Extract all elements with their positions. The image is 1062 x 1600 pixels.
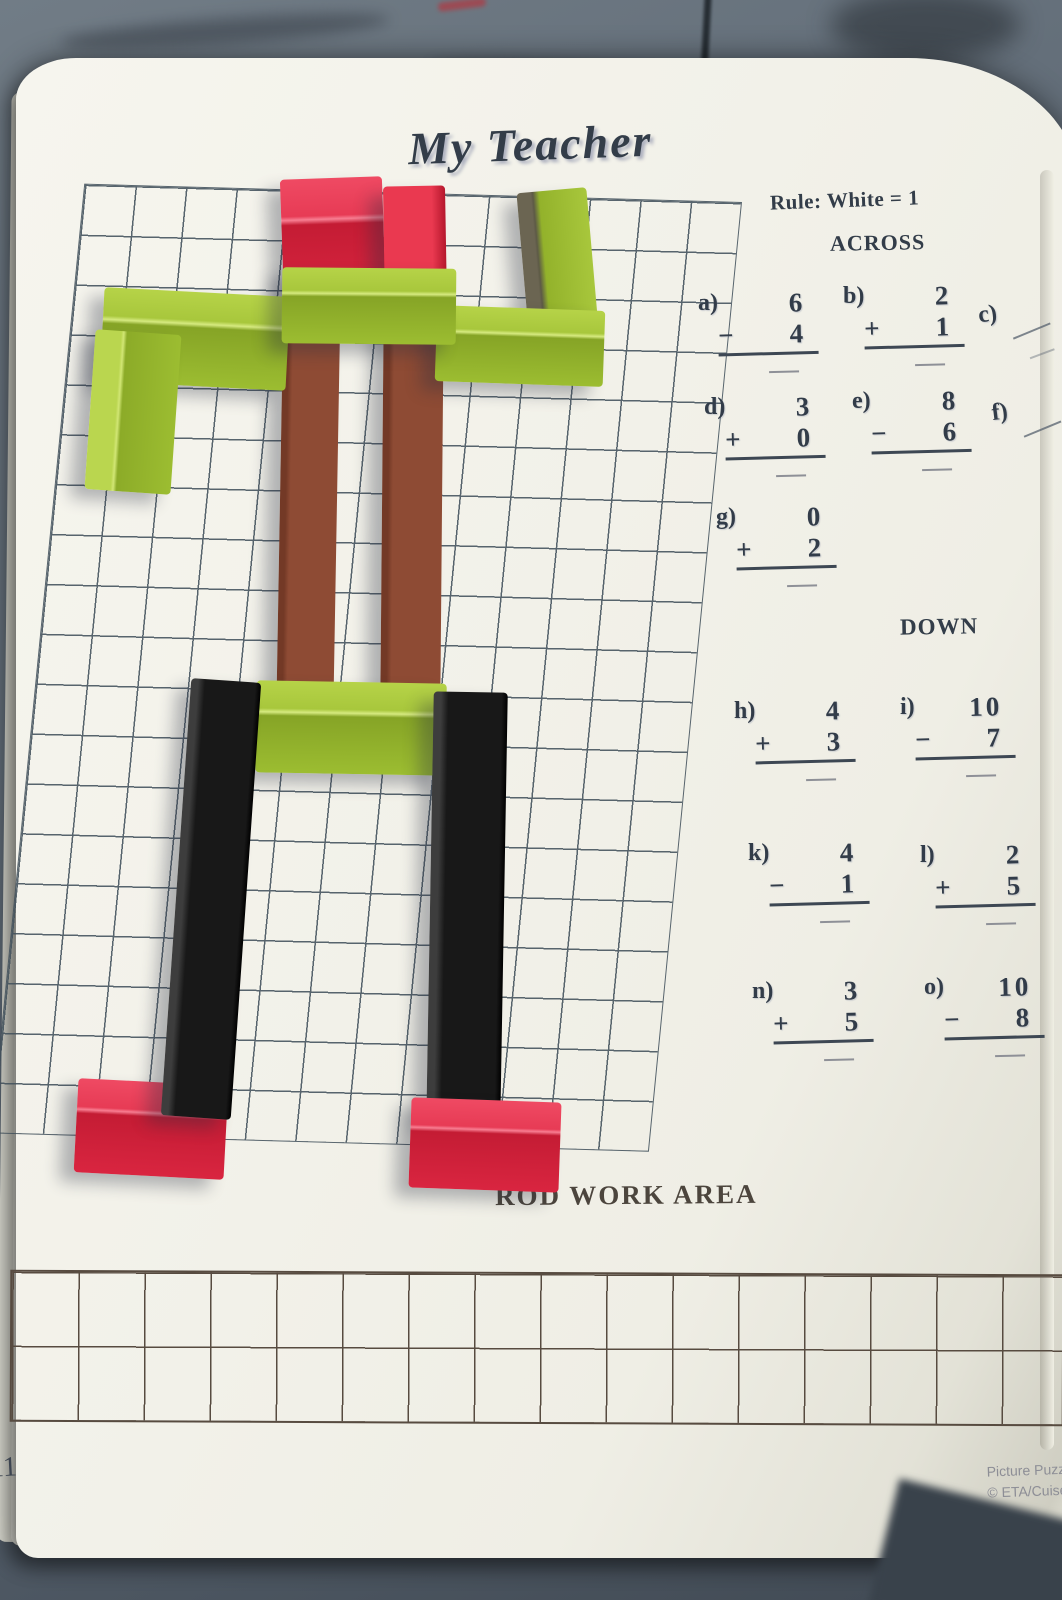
top-number: 4 (840, 837, 869, 869)
red-crayon-mark (438, 0, 487, 12)
math-problem-g: g) 0 +2 (716, 502, 836, 587)
problem-label: f) (990, 396, 1010, 436)
problem-label: k) (748, 838, 769, 923)
math-problem-c-cutoff: c) (976, 292, 1054, 362)
answer-blank (824, 1058, 854, 1061)
operator: − (870, 418, 889, 449)
problem-label: n) (752, 976, 773, 1061)
math-problem-i: i) 10 −7 (900, 692, 1015, 777)
answer-blank (806, 778, 836, 781)
bottom-number: 7 (986, 722, 1003, 753)
bottom-number: 2 (807, 532, 824, 563)
math-problem-n: n) 3 +5 (752, 976, 873, 1061)
top-number: 6 (788, 287, 817, 319)
bottom-number: 1 (841, 868, 858, 899)
bottom-number: 5 (845, 1006, 862, 1037)
answer-blank (915, 363, 945, 366)
photo-of-workbook-page: My Teacher Rule: White = 1 ACROSS DOWN R… (0, 0, 1062, 1600)
across-heading: ACROSS (830, 229, 926, 257)
problem-label: e) (852, 386, 871, 471)
cutoff-rule-line (1013, 322, 1051, 339)
math-problem-b: b) 2 +1 (843, 281, 964, 366)
rod-shoulders-green (282, 267, 457, 345)
math-problem-e: e) 8 −6 (852, 386, 971, 471)
top-number: 2 (935, 280, 964, 312)
math-problem-a: a) 6 −4 (698, 288, 818, 373)
bottom-number: 1 (936, 311, 953, 342)
rod-right-upper-arm-green (516, 187, 597, 323)
math-problem-o: o) 10 −8 (924, 972, 1044, 1057)
rod-hips-green (255, 680, 447, 775)
page-number: 11 (0, 1451, 18, 1484)
problem-label: l) (920, 840, 935, 925)
top-number: 10 (969, 691, 1015, 723)
operator: − (769, 870, 788, 901)
operator: + (725, 424, 744, 455)
top-number: 3 (796, 391, 825, 423)
problem-label: i) (900, 692, 915, 777)
down-heading: DOWN (900, 613, 979, 640)
credit-line-2: © ETA/Cuisen (987, 1479, 1062, 1503)
operator: + (755, 728, 774, 759)
answer-blank (787, 584, 817, 587)
page-title: My Teacher (407, 114, 653, 175)
answer-blank (922, 468, 952, 471)
math-problem-d: d) 3 +0 (704, 392, 825, 477)
operator: + (736, 534, 755, 565)
problem-label: d) (704, 392, 725, 477)
answer-blank (986, 922, 1016, 925)
bottom-number: 3 (827, 726, 844, 757)
answer-blank (820, 920, 850, 923)
rod-work-area-grid (10, 1270, 1062, 1427)
math-problem-l: l) 2 +5 (920, 840, 1035, 925)
problem-label: g) (716, 502, 736, 587)
operator: − (718, 320, 737, 351)
rod-right-forearm-green (435, 305, 606, 387)
top-number: 3 (844, 975, 873, 1007)
answer-blank (995, 1054, 1025, 1057)
bottom-number: 5 (1006, 870, 1023, 901)
bottom-number: 0 (797, 422, 814, 453)
top-number: 10 (998, 971, 1044, 1003)
math-problem-k: k) 4 −1 (748, 838, 869, 923)
rod-right-leg-black (426, 691, 508, 1124)
operator: − (914, 724, 933, 755)
operator: − (944, 1004, 963, 1035)
top-number: 8 (941, 385, 970, 417)
problem-label: h) (734, 696, 755, 781)
answer-blank (769, 370, 799, 373)
answer-blank (966, 774, 996, 777)
bottom-number: 6 (942, 416, 959, 447)
page-curl-edge (1040, 170, 1054, 1450)
top-number: 0 (806, 501, 835, 533)
operator: + (864, 313, 883, 344)
answer-blank (776, 474, 806, 477)
bottom-number: 4 (789, 318, 806, 349)
rod-left-forearm-green (85, 329, 182, 495)
problem-label: o) (924, 972, 944, 1057)
bottom-number: 8 (1015, 1002, 1032, 1033)
credit-line-1: Picture Puzzle (986, 1458, 1062, 1482)
top-number: 4 (826, 695, 855, 727)
table-smudge (830, 0, 1020, 60)
rod-right-foot-red (408, 1097, 561, 1192)
table-smudge (59, 7, 390, 56)
problem-label: a) (698, 288, 718, 373)
math-problem-h: h) 4 +3 (734, 696, 855, 781)
operator: + (934, 872, 953, 903)
rule-text: Rule: White = 1 (770, 185, 920, 215)
top-number: 2 (1005, 839, 1034, 871)
copyright-credit: Picture Puzzle © ETA/Cuisen (986, 1458, 1062, 1503)
operator: + (773, 1008, 792, 1039)
problem-label: b) (843, 281, 864, 366)
